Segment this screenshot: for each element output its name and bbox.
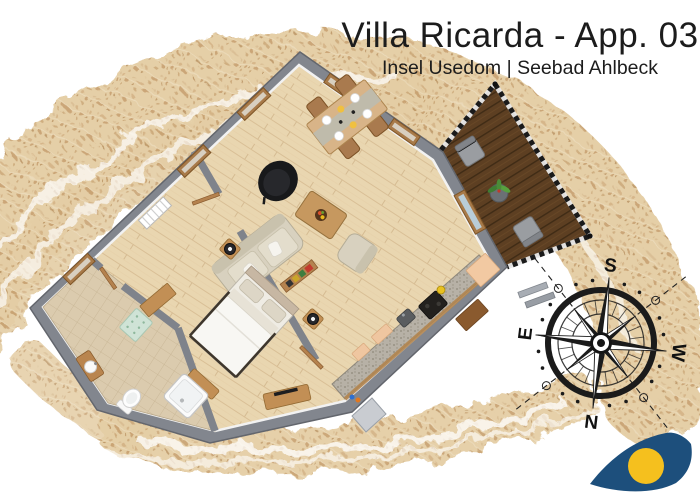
kitchen-item [356,398,361,403]
compass-label-west: W [666,342,689,362]
floorplan-page: S N E W Villa Ricarda - App. 03 Insel Us… [0,0,700,500]
floorplan-image: S N E W Villa Ricarda - App. 03 Insel Us… [0,0,700,500]
compass-label-east: E [515,326,537,341]
compass-label-north: N [583,412,599,435]
compass-label-south: S [603,255,618,277]
wave-eye-logo [590,433,692,492]
kitchen-bowl [437,286,445,294]
page-subtitle: Insel Usedom | Seebad Ahlbeck [382,57,658,79]
kitchen-item [350,395,355,400]
logo-sun [628,448,664,484]
page-title: Villa Ricarda - App. 03 [341,16,698,55]
